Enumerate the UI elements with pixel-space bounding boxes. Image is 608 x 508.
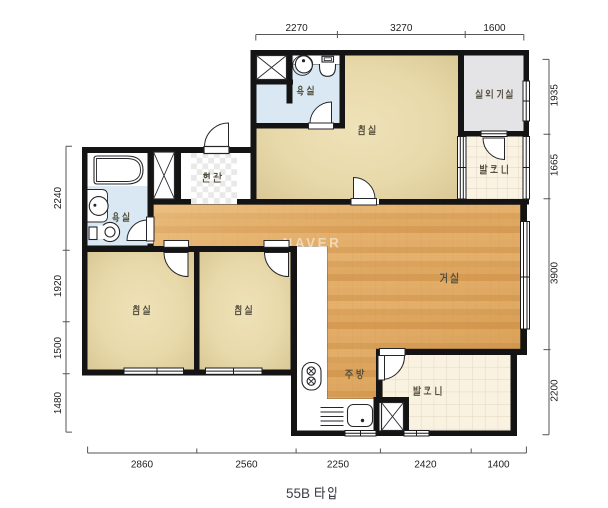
- svg-text:1500: 1500: [53, 336, 64, 359]
- svg-text:2240: 2240: [53, 186, 64, 209]
- svg-text:1935: 1935: [550, 84, 561, 107]
- svg-text:1600: 1600: [483, 23, 506, 34]
- svg-text:2200: 2200: [550, 379, 561, 402]
- svg-text:1920: 1920: [53, 274, 64, 297]
- svg-text:3900: 3900: [550, 261, 561, 284]
- svg-text:1400: 1400: [487, 460, 510, 471]
- svg-text:2560: 2560: [235, 460, 258, 471]
- svg-text:2420: 2420: [414, 460, 437, 471]
- svg-text:2270: 2270: [285, 23, 308, 34]
- svg-text:1480: 1480: [53, 391, 64, 414]
- svg-text:3270: 3270: [390, 23, 413, 34]
- svg-text:55B: 55B: [286, 486, 310, 501]
- svg-text:2860: 2860: [131, 460, 154, 471]
- svg-text:2250: 2250: [327, 460, 350, 471]
- svg-text:1665: 1665: [550, 153, 561, 176]
